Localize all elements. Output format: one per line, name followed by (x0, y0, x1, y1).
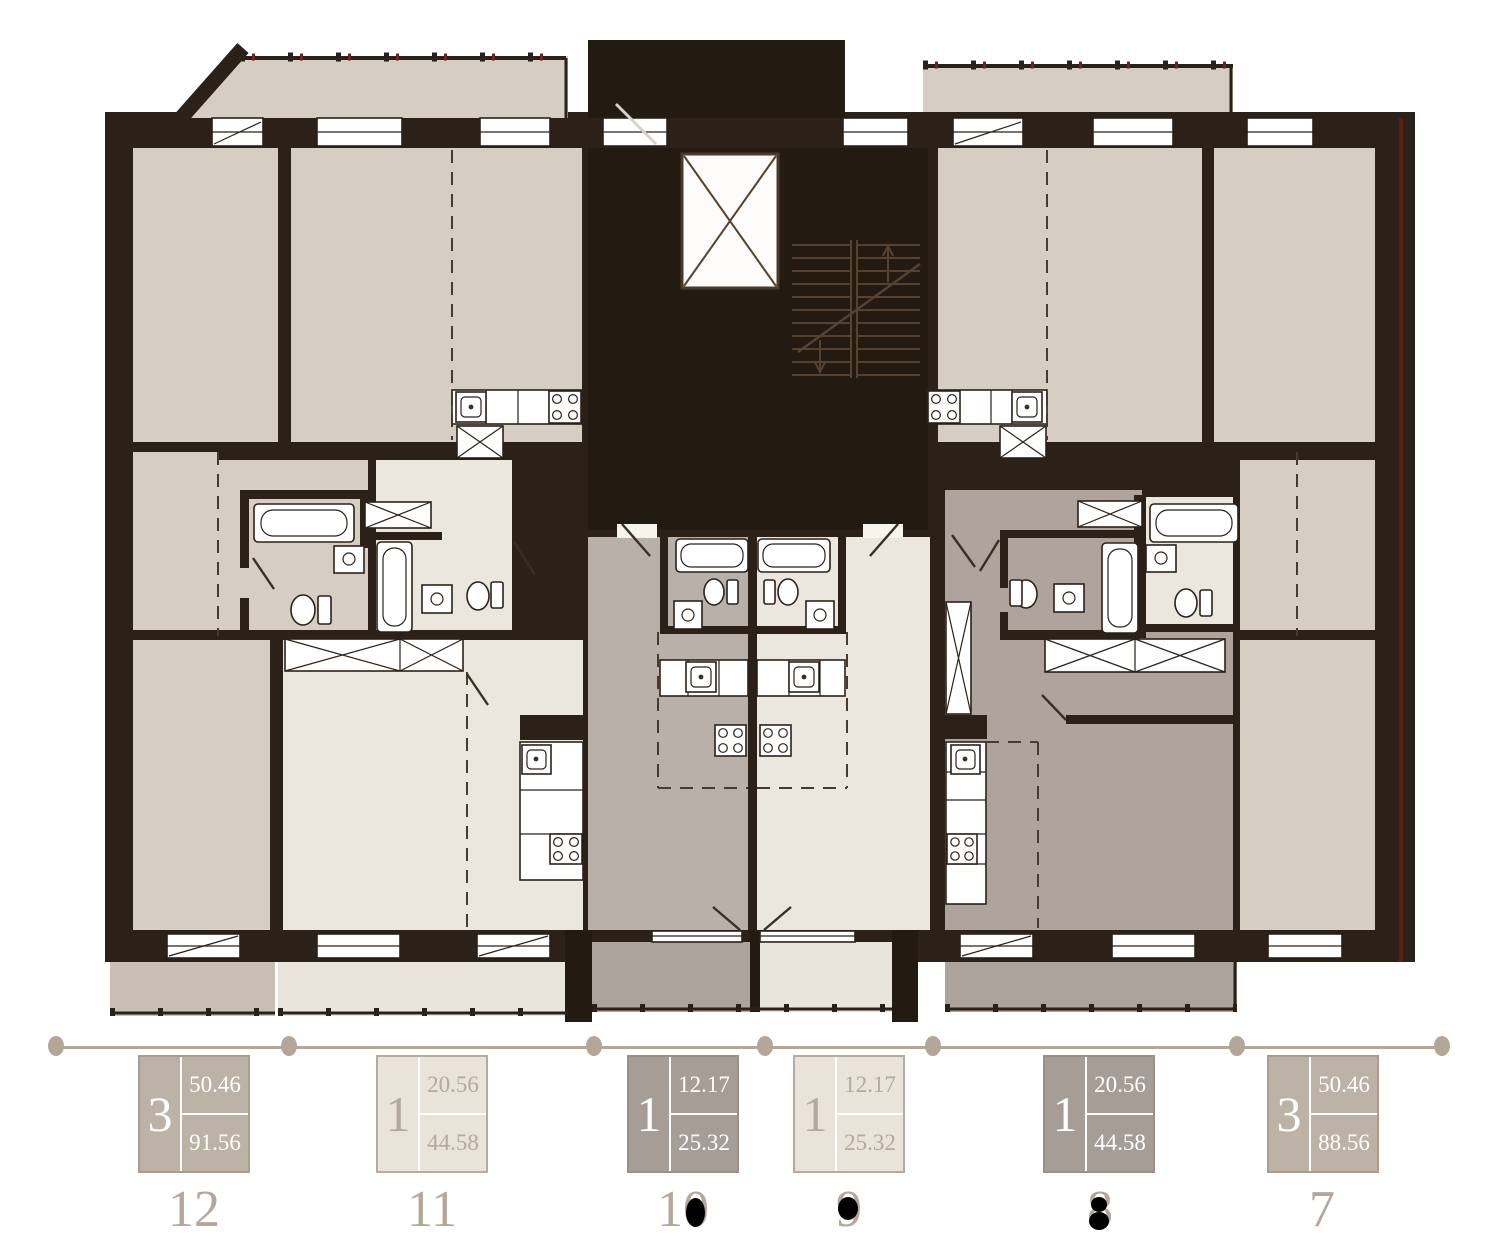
axis-node (925, 1036, 941, 1056)
total-area: 25.32 (671, 1115, 737, 1171)
axis-node (1434, 1036, 1450, 1056)
apartment-card-11: 1 20.56 44.58 (376, 1055, 488, 1173)
apartment-number-7: 7 (1272, 1182, 1372, 1235)
room-count: 1 (629, 1057, 669, 1171)
living-area: 12.17 (837, 1057, 903, 1115)
room-count: 1 (795, 1057, 835, 1171)
total-area: 25.32 (837, 1115, 903, 1171)
living-area: 20.56 (1087, 1057, 1153, 1115)
total-area: 88.56 (1311, 1115, 1377, 1171)
elevator (682, 154, 778, 288)
total-area: 44.58 (1087, 1115, 1153, 1171)
living-area: 20.56 (420, 1057, 486, 1115)
living-area: 50.46 (1311, 1057, 1377, 1115)
axis-node (586, 1036, 602, 1056)
total-area: 91.56 (182, 1115, 248, 1171)
apartment-number-10: 10 (633, 1182, 733, 1235)
room-count: 1 (378, 1057, 418, 1171)
apartment-card-10: 1 12.17 25.32 (627, 1055, 739, 1173)
apartment-card-7: 3 50.46 88.56 (1267, 1055, 1379, 1173)
living-area: 50.46 (182, 1057, 248, 1115)
total-area: 44.58 (420, 1115, 486, 1171)
apartment-number-12: 12 (144, 1182, 244, 1235)
apartment-number-9: 9 (799, 1182, 899, 1235)
axis-node (48, 1036, 64, 1056)
axis-node (281, 1036, 297, 1056)
apartment-card-9: 1 12.17 25.32 (793, 1055, 905, 1173)
axis-node (1229, 1036, 1245, 1056)
room-count: 3 (1269, 1057, 1309, 1171)
apartment-number-11: 11 (382, 1182, 482, 1235)
axis-node (757, 1036, 773, 1056)
living-area: 12.17 (671, 1057, 737, 1115)
red-accent-lines (1399, 118, 1403, 962)
apartment-card-8: 1 20.56 44.58 (1043, 1055, 1155, 1173)
apartment-card-12: 3 50.46 91.56 (138, 1055, 250, 1173)
floor-plan-page: 3 50.46 91.56 1 20.56 44.58 1 12.17 25.3… (0, 0, 1500, 1235)
room-count: 3 (140, 1057, 180, 1171)
floor-plan (0, 0, 1500, 1035)
apartment-number-8: 8 (1050, 1182, 1150, 1235)
room-count: 1 (1045, 1057, 1085, 1171)
